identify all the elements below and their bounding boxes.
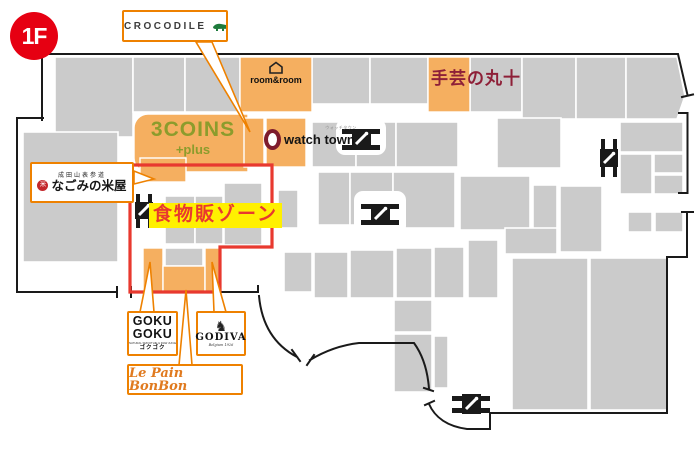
store-block — [460, 176, 530, 230]
store-block — [318, 172, 350, 225]
store-block — [620, 122, 683, 152]
store-block — [133, 57, 185, 112]
three-coins-title: 3COINS — [138, 119, 248, 140]
store-block — [620, 154, 652, 194]
goku-line1: GOKU — [133, 315, 173, 328]
house-icon — [268, 61, 284, 74]
store-block — [654, 154, 683, 173]
crocodile-title: CROCODILE — [124, 21, 207, 32]
store-block — [590, 258, 668, 410]
godiva-subtitle: Belgium 1926 — [209, 344, 234, 348]
callout-goku-goku: GOKU GOKU NATURAL SMOOTHIE & RAW JUICE ゴ… — [127, 311, 178, 356]
store-block — [533, 185, 557, 231]
floor-badge-label: 1F — [22, 23, 47, 50]
floor-plan-map — [0, 0, 700, 456]
crocodile-icon — [212, 20, 227, 32]
callout-godiva: ♞ GODIVA Belgium 1926 — [196, 311, 246, 356]
watch-ring-icon — [264, 129, 281, 150]
store-block — [396, 122, 458, 167]
store-block — [284, 252, 312, 292]
room-and-room-title: room&room — [250, 76, 302, 85]
store-block — [626, 57, 685, 119]
three-coins-subtitle: +plus — [138, 143, 248, 156]
callout-nagomi-yoneya: 成田山表参道 米 なごみの米屋 — [30, 162, 134, 203]
floor-badge: 1F — [10, 12, 58, 60]
label-room-and-room: room&room — [240, 61, 312, 85]
store-block — [350, 250, 394, 298]
store-block — [55, 57, 133, 137]
store-block — [396, 248, 432, 298]
store-block — [165, 248, 203, 266]
store-block — [314, 252, 348, 298]
nagomi-seal-icon: 米 — [37, 180, 48, 191]
store-block — [522, 57, 576, 119]
godiva-title: GODIVA — [195, 333, 246, 343]
callout-le-pain-bonbon: Le Pain BonBon — [127, 364, 243, 395]
store-blocks — [23, 57, 685, 410]
store-block — [370, 57, 428, 104]
store-block — [628, 212, 652, 232]
nagomi-title: なごみの米屋 — [51, 179, 126, 192]
label-shugei-marujyu: 手芸の丸十 — [431, 64, 521, 89]
store-le-pain-bonbon — [163, 266, 205, 292]
store-block — [560, 186, 602, 252]
label-three-coins: 3COINS +plus — [138, 119, 248, 156]
store-block — [512, 258, 588, 410]
food-zone-label: 食物販ゾーン — [149, 203, 282, 228]
callout-crocodile: CROCODILE — [122, 10, 228, 42]
label-watch-town: watch town ウォッチタウン — [264, 129, 355, 150]
store-block — [434, 336, 448, 388]
store-block — [434, 247, 464, 298]
escalator-icon — [600, 139, 618, 177]
store-block — [394, 300, 432, 332]
godiva-emblem-icon: ♞ — [215, 319, 228, 333]
goku-kana: ゴクゴク — [139, 346, 165, 352]
watch-town-kana: ウォッチタウン — [325, 125, 357, 131]
store-block — [655, 212, 683, 232]
goku-line2: GOKU — [133, 328, 173, 341]
store-block — [497, 118, 561, 168]
escalator-icon — [452, 394, 490, 414]
entrance-arc — [259, 296, 300, 361]
store-block — [468, 240, 498, 298]
store-block — [505, 228, 557, 254]
store-block — [654, 175, 683, 194]
watch-town-title: watch town — [284, 132, 355, 147]
pointer-lepain — [179, 290, 192, 365]
lepain-title: Le Pain BonBon — [129, 367, 241, 393]
floor-map-page: 1F 3COINS +plus watch town ウォッチタウン room&… — [0, 0, 700, 456]
store-block — [312, 57, 370, 104]
store-block — [576, 57, 626, 119]
